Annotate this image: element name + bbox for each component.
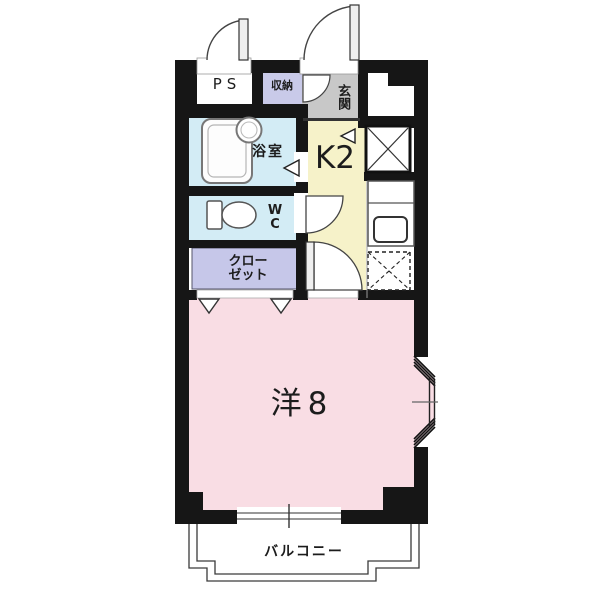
label-storage: 収納 xyxy=(261,66,303,106)
wall-segment xyxy=(414,60,428,357)
toilet-icon xyxy=(207,201,222,229)
label-toilet: W C xyxy=(257,197,293,239)
label-closet: クロー ゼット xyxy=(192,250,304,288)
label-balcony: バルコニー xyxy=(189,541,419,565)
closet-opening xyxy=(197,290,293,298)
door-leaf xyxy=(350,5,359,60)
wall-segment xyxy=(189,62,197,106)
alcove-area-lower xyxy=(368,92,414,118)
room-door-opening xyxy=(308,290,358,298)
door-leaf xyxy=(239,19,248,60)
wall-segment xyxy=(388,60,415,86)
label-bathroom: 浴室 xyxy=(233,141,303,165)
label-closet-line2: ゼット xyxy=(228,269,267,283)
door-leaf xyxy=(306,242,314,290)
kitchen-sink-icon xyxy=(374,217,407,242)
label-closet-line1: クロー xyxy=(228,255,267,269)
toilet-bowl xyxy=(222,202,256,228)
washbasin-icon xyxy=(237,118,262,143)
label-toilet-line2: C xyxy=(270,218,280,232)
label-ps: PS xyxy=(197,64,252,104)
wall-segment xyxy=(175,60,189,524)
wall-segment xyxy=(189,104,308,118)
label-toilet-line1: W xyxy=(268,204,282,218)
label-western-room: 洋8 xyxy=(189,298,415,510)
label-entrance: 玄関 xyxy=(328,74,356,120)
entrance-door-threshold xyxy=(300,58,358,74)
wall-segment xyxy=(189,240,308,248)
label-kitchen: K2 xyxy=(303,128,367,188)
wall-segment xyxy=(358,60,368,118)
wall-segment xyxy=(189,186,308,196)
floorplan: PS 収納 玄関 浴室 K2 W C クロー ゼット 洋8 バルコニー xyxy=(0,0,600,601)
